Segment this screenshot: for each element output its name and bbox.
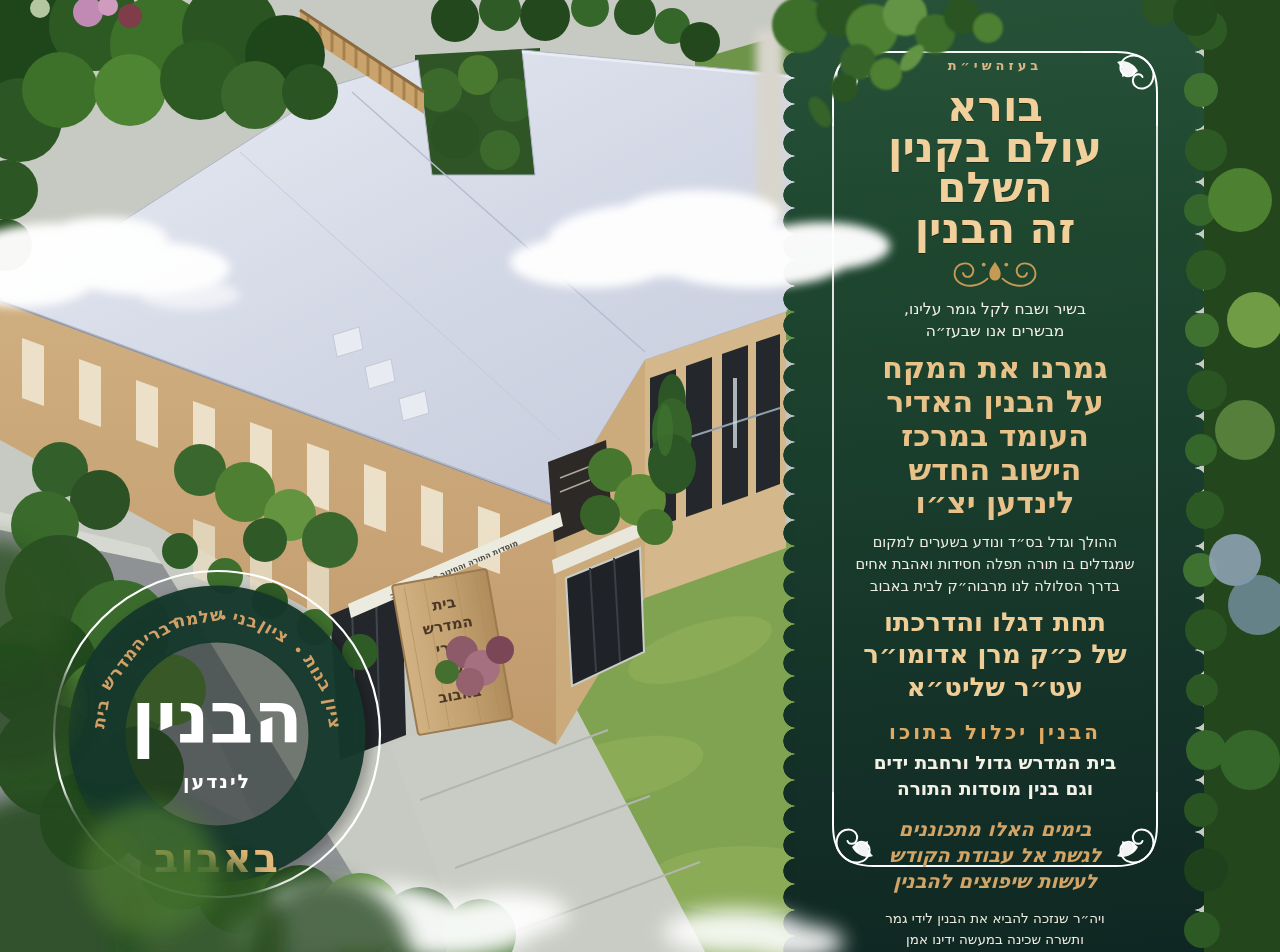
description-line: ההולך וגדל בס״ד ונודע בשערים למקום bbox=[855, 532, 1134, 554]
closing-line: ותשרה שכינה במעשה ידינו אמן bbox=[885, 929, 1105, 951]
closing-text: ויה״ר שנזכה להביא את הבנין לידי גמר ותשר… bbox=[885, 908, 1105, 951]
description-line: בדרך הסלולה לנו מרבוה״ק לבית באבוב bbox=[855, 576, 1134, 598]
announce-line: לינדען יצ״ו bbox=[882, 486, 1107, 520]
leadership-line: תחת דגלו והדרכתו bbox=[863, 606, 1126, 639]
announce-line: על הבנין האדיר bbox=[882, 385, 1107, 419]
announce-line: גמרנו את המקח bbox=[882, 351, 1107, 385]
plans-line: בימים האלו מתכוננים bbox=[889, 817, 1101, 843]
dedication-panel: בעזהשי״ת בוראעולם בקניןהשלםזה הבנין בשיר… bbox=[783, 0, 1207, 952]
description-line: שמגדלים בו תורה תפלה חסידות ואהבת אחים bbox=[855, 554, 1134, 576]
blurred-trunk bbox=[756, 30, 784, 220]
announcement-text: גמרנו את המקח על הבנין האדיר העומד במרכז… bbox=[882, 351, 1107, 520]
announce-line: העומד במרכז bbox=[882, 419, 1107, 453]
includes-heading: הבנין יכלול בתוכו bbox=[889, 720, 1101, 744]
includes-line: וגם בנין מוסדות התורה bbox=[874, 776, 1117, 802]
announce-line: הישוב החדש bbox=[882, 453, 1107, 487]
leadership-line: עט״ר שליט״א bbox=[863, 671, 1126, 704]
title-line: השלם bbox=[888, 168, 1102, 209]
main-title: בוראעולם בקניןהשלםזה הבנין bbox=[888, 87, 1102, 250]
closing-line: ויה״ר שנזכה להביא את הבנין לידי גמר bbox=[885, 908, 1105, 930]
intro-line: בשיר ושבח לקל גומר עלינו, bbox=[904, 298, 1086, 320]
intro-line: מבשרים אנו שבעז״ה bbox=[904, 320, 1086, 342]
title-line: עולם בקנין bbox=[888, 128, 1102, 169]
dedication-flyer: מוסדות התורה והחינוך החסידי באבוב בית המ… bbox=[0, 0, 1280, 952]
plans-line: לגשת אל עבודת הקודש bbox=[889, 843, 1101, 869]
title-line: זה הבנין bbox=[888, 209, 1102, 250]
leadership-text: תחת דגלו והדרכתו של כ״ק מרן אדומו״ר עט״ר… bbox=[863, 606, 1126, 704]
plans-line: לעשות שיפוצים להבנין bbox=[889, 869, 1101, 895]
plans-text: בימים האלו מתכוננים לגשת אל עבודת הקודש … bbox=[889, 817, 1101, 896]
includes-text: בית המדרש גדול ורחבת ידים וגם בנין מוסדו… bbox=[874, 750, 1117, 803]
title-line: בורא bbox=[888, 87, 1102, 128]
leadership-line: של כ״ק מרן אדומו״ר bbox=[863, 638, 1126, 671]
description-text: ההולך וגדל בס״ד ונודע בשערים למקום שמגדל… bbox=[855, 532, 1134, 597]
besiyata-line: בעזהשי״ת bbox=[948, 58, 1043, 73]
gold-flourish-divider bbox=[931, 258, 1059, 290]
includes-line: בית המדרש גדול ורחבת ידים bbox=[874, 750, 1117, 776]
dedication-panel-content: בעזהשי״ת בוראעולם בקניןהשלםזה הבנין בשיר… bbox=[817, 0, 1173, 952]
intro-text: בשיר ושבח לקל גומר עלינו, מבשרים אנו שבע… bbox=[904, 298, 1086, 343]
